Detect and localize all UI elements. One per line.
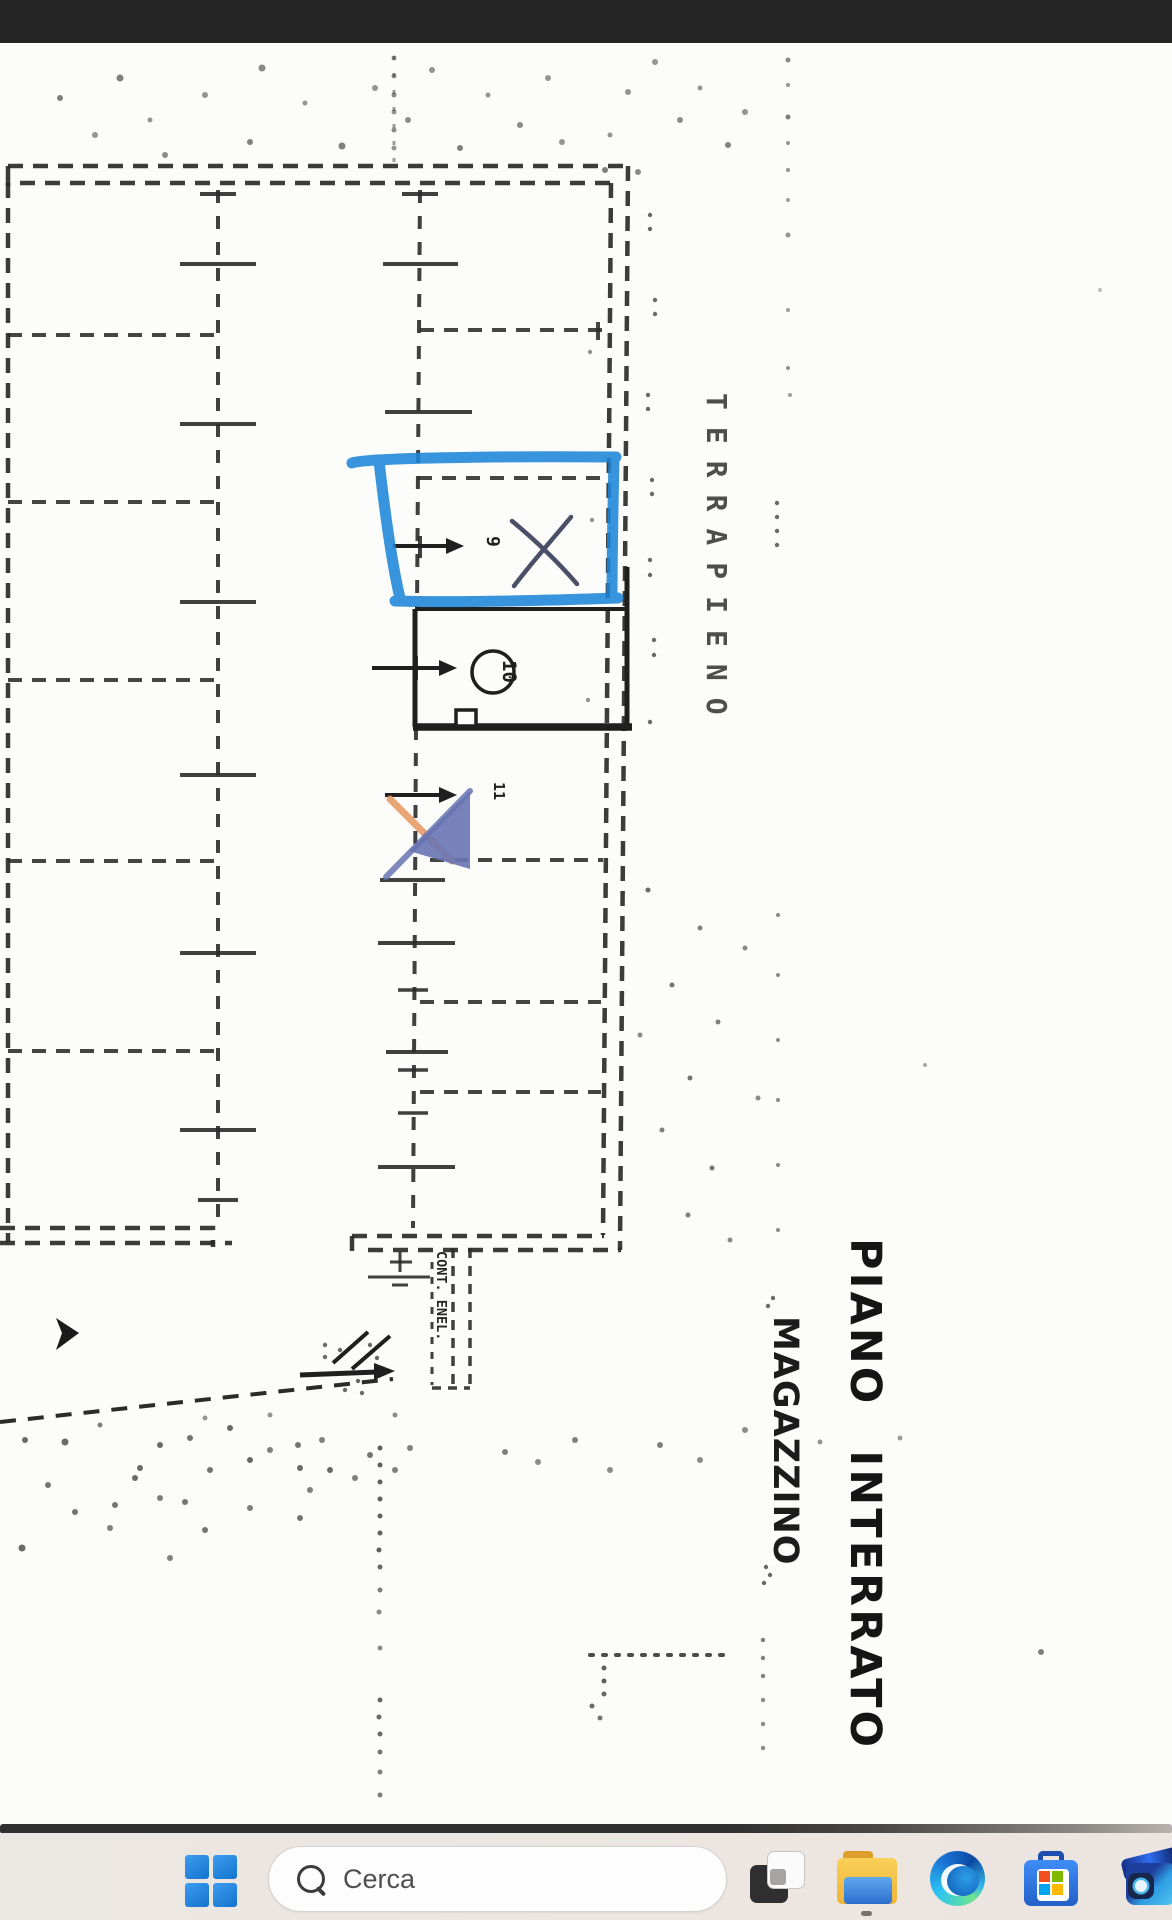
plan-partitions [8,322,608,1092]
windows-logo-icon [185,1855,209,1879]
task-view-button[interactable] [748,1851,806,1909]
photos-button[interactable] [1118,1851,1172,1909]
plan-centerlines [180,190,472,1228]
x-mark-annotation [512,517,577,586]
unit-labels: 9 10 11 [472,536,520,800]
taskbar: Cerca [0,1833,1172,1920]
blue-highlight-rectangle [352,457,618,602]
windows-logo-icon [185,1883,209,1907]
floorplan-drawing: 9 10 11 [0,0,1172,1920]
search-input[interactable]: Cerca [268,1846,727,1912]
room-10-door-notch [456,710,476,726]
search-placeholder: Cerca [343,1864,415,1895]
cont-enel-label: CONT. ENEL. [433,1251,449,1340]
terrapieno-label: TERRAPIENO [700,393,733,732]
room-10-walls [413,567,632,727]
file-explorer-button[interactable] [837,1851,895,1909]
edge-button[interactable] [930,1851,988,1909]
magazzino-label: MAGAZZINO [765,1316,805,1566]
plan-walls [0,56,628,1251]
running-indicator [861,1911,872,1916]
unit-10-label: 10 [498,660,520,683]
windows-logo-icon [213,1883,237,1907]
scan-noise-dots [19,56,1103,1798]
piano-interrato-label: PIANO INTERRATO [840,1238,890,1750]
north-arrow-icon [56,1318,79,1350]
unit-11-label: 11 [490,782,508,800]
start-button[interactable] [185,1855,237,1907]
watermark-logo [386,791,470,877]
unit-9-label: 9 [482,536,503,547]
top-black-bar [0,0,1172,43]
search-icon [297,1865,325,1893]
store-button[interactable] [1022,1851,1080,1909]
windows-logo-icon [213,1855,237,1879]
